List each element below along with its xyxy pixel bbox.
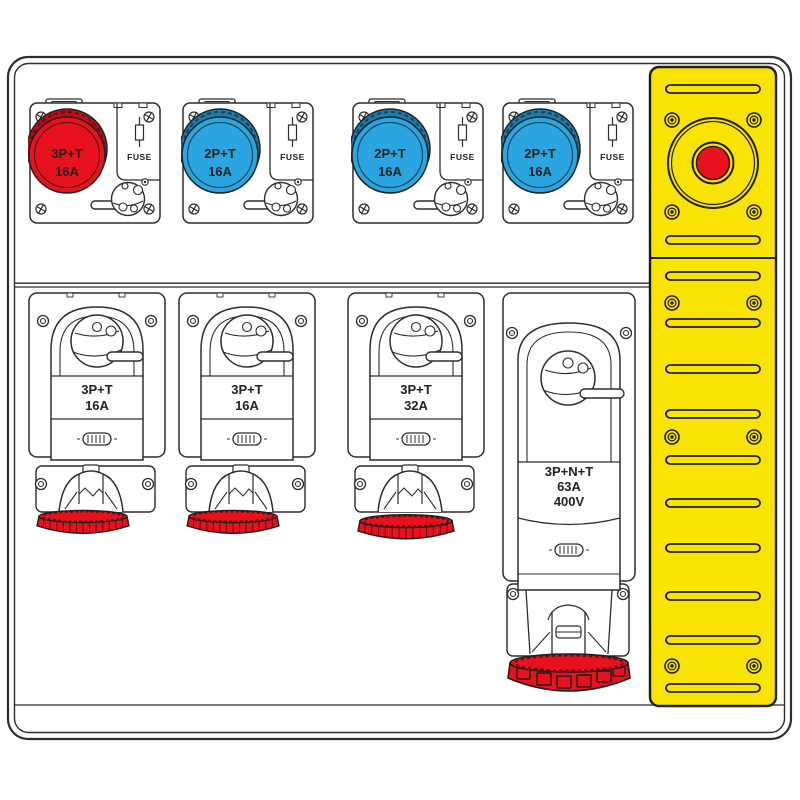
protective-cap[interactable] (508, 654, 630, 691)
socket-label: 3P+T (231, 382, 262, 397)
socket-rating: 16A (378, 164, 402, 179)
cee-socket-unit-1[interactable]: 3P+T 16A FUSE (28, 98, 162, 226)
socket-label: 3P+T (400, 382, 431, 397)
socket-rating: 16A (528, 164, 552, 179)
interlocked-socket-2[interactable]: 3P+T 16A (177, 290, 317, 550)
socket-label: 2P+T (524, 146, 555, 161)
socket-rating: 63A (557, 479, 581, 494)
fuse-label: FUSE (600, 152, 625, 162)
protective-cap[interactable] (37, 510, 129, 533)
cee-socket-unit-4[interactable]: 2P+T 16A FUSE (501, 98, 635, 226)
protective-cap[interactable] (358, 515, 454, 539)
socket-rating: 16A (208, 164, 232, 179)
socket-label: 2P+T (374, 146, 405, 161)
fuse-label: FUSE (280, 152, 305, 162)
socket-rating: 16A (85, 398, 109, 413)
socket-label: 3P+T (51, 146, 82, 161)
socket-label: 2P+T (204, 146, 235, 161)
protective-cap[interactable] (187, 510, 279, 533)
socket-voltage: 400V (554, 494, 585, 509)
fuse-label: FUSE (127, 152, 152, 162)
interlocked-socket-1[interactable]: 3P+T 16A (27, 290, 167, 550)
estop-mushroom[interactable] (697, 147, 730, 180)
socket-rating: 32A (404, 398, 428, 413)
interlocked-socket-3[interactable]: 3P+T 32A (346, 290, 486, 550)
socket-rating: 16A (55, 164, 79, 179)
cee-socket-unit-3[interactable]: 2P+T 16A FUSE (351, 98, 485, 226)
emergency-stop-panel (648, 64, 780, 712)
fuse-label: FUSE (450, 152, 475, 162)
socket-label: 3P+T (81, 382, 112, 397)
socket-label: 3P+N+T (545, 464, 593, 479)
cee-socket-unit-2[interactable]: 2P+T 16A FUSE (181, 98, 315, 226)
distribution-board: 3P+T 16A FUSE 2P+T 16A FUSE 2P+T 16A FUS… (0, 0, 800, 800)
socket-rating: 16A (235, 398, 259, 413)
interlocked-socket-4[interactable]: 3P+N+T 63A 400V (496, 290, 644, 714)
